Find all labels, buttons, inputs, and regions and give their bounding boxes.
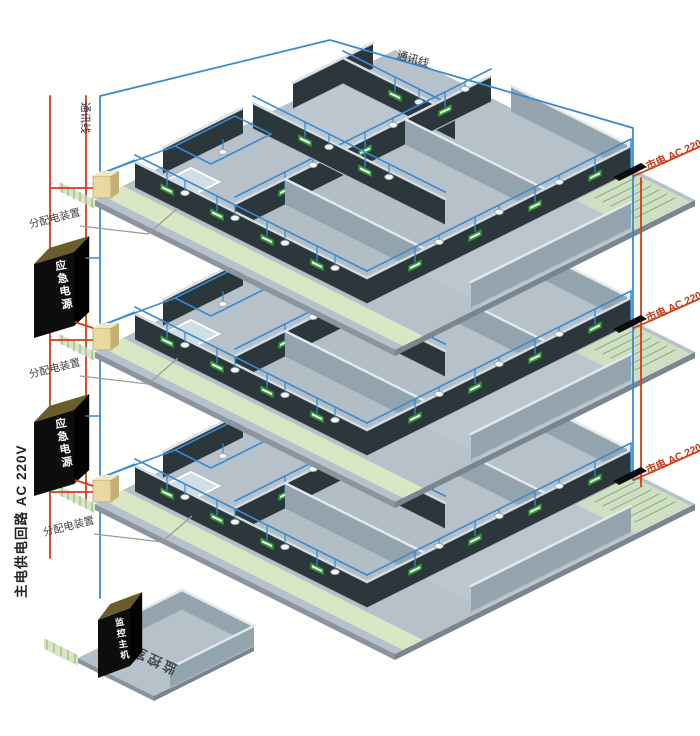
emergency-power-stub <box>75 480 93 486</box>
downlight-icon <box>231 367 240 372</box>
isometric-building-diagram: 市电 AC 220V市电 AC 220V市电 AC 220V应急电源应急电源监控… <box>0 0 700 736</box>
downlight-icon <box>231 519 240 524</box>
downlight-icon <box>495 209 504 214</box>
downlight-icon <box>181 494 190 499</box>
distribution-device-label: 分配电装置 <box>28 356 82 381</box>
monitoring-room: 监控室 <box>44 590 254 701</box>
downlight-icon <box>331 569 340 574</box>
downlight-icon <box>181 342 190 347</box>
downlight-icon <box>331 417 340 422</box>
mains-power-label: 市电 AC 220V <box>644 286 700 325</box>
downlight-icon <box>495 361 504 366</box>
downlight-icon <box>281 240 290 245</box>
downlight-icon <box>461 86 470 91</box>
downlight-icon <box>555 483 564 488</box>
left-landing <box>59 486 95 513</box>
emergency-power-box-2: 应急电源 <box>34 394 100 496</box>
emergency-power-stub <box>75 322 93 328</box>
downlight-icon <box>181 190 190 195</box>
downlight-icon <box>219 453 228 458</box>
emergency-power-box-1: 应急电源 <box>34 236 100 338</box>
downlight-icon <box>389 122 398 127</box>
comm-riser-label: 通讯线 <box>79 102 92 134</box>
building-automation-diagram: 市电 AC 220V市电 AC 220V市电 AC 220V应急电源应急电源监控… <box>0 0 700 736</box>
mains-power-label: 市电 AC 220V <box>644 134 700 173</box>
downlight-icon <box>435 391 444 396</box>
downlight-icon <box>435 239 444 244</box>
downlight-icon <box>385 174 394 179</box>
distribution-box <box>93 176 111 198</box>
left-landing <box>59 182 95 209</box>
distribution-box <box>93 480 111 502</box>
main-power-circuit-label: 主电供电回路 AC 220V <box>13 444 29 598</box>
downlight-icon <box>325 144 334 149</box>
downlight-icon <box>231 215 240 220</box>
downlight-icon <box>281 544 290 549</box>
downlight-icon <box>219 301 228 306</box>
distribution-box <box>93 328 111 350</box>
downlight-icon <box>555 179 564 184</box>
downlight-icon <box>435 543 444 548</box>
downlight-icon <box>555 331 564 336</box>
distribution-device-label: 分配电装置 <box>28 206 82 231</box>
downlight-icon <box>495 513 504 518</box>
mains-power-label: 市电 AC 220V <box>644 438 700 477</box>
downlight-icon <box>331 265 340 270</box>
downlight-icon <box>309 162 318 167</box>
downlight-icon <box>281 392 290 397</box>
downlight-icon <box>219 149 228 154</box>
